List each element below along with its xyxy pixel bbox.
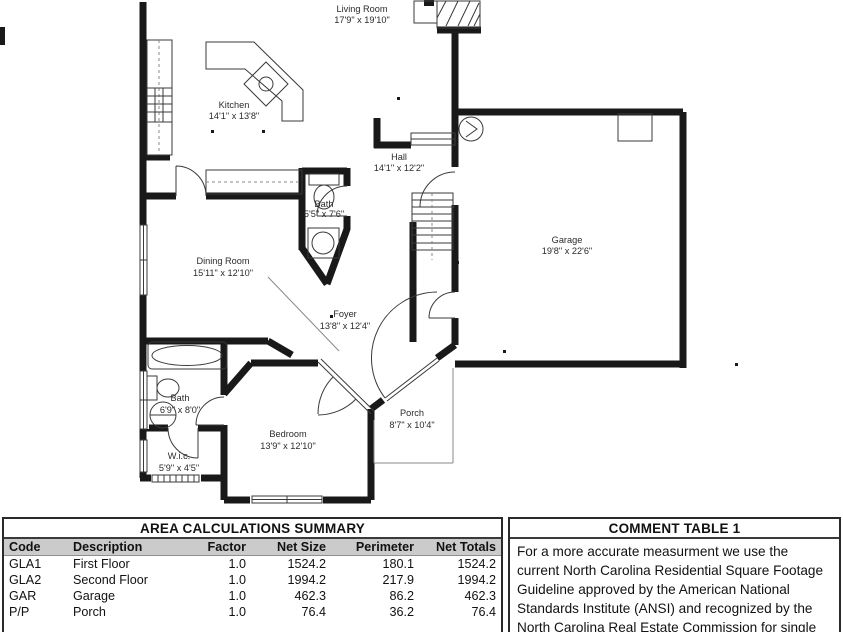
- cell-net-size: 76.4: [251, 604, 331, 620]
- floor-plan-drawing: Living Room 17'9" x 19'10" Kitchen 14'1"…: [0, 0, 843, 516]
- table-row: GLA1 First Floor 1.0 1524.2 180.1 1524.2: [4, 556, 501, 573]
- room-dims-foyer: 13'8" x 12'4": [320, 321, 370, 331]
- col-header-code: Code: [4, 539, 68, 556]
- area-calculations-table: AREA CALCULATIONS SUMMARY Code Descripti…: [2, 517, 503, 632]
- room-dims-kitchen: 14'1" x 13'8": [209, 111, 259, 121]
- cell-code: GLA2: [4, 572, 68, 588]
- cell-net-totals: 76.4: [419, 604, 501, 620]
- stairs: [411, 133, 455, 260]
- table-row: GAR Garage 1.0 462.3 86.2 462.3: [4, 588, 501, 604]
- equipment-box: [618, 114, 652, 141]
- cell-perimeter: 86.2: [331, 588, 419, 604]
- room-dims-hall: 14'1" x 12'2": [374, 163, 424, 173]
- room-label-porch: Porch: [400, 408, 424, 418]
- room-label-hall: Hall: [391, 152, 407, 162]
- comment-table: COMMENT TABLE 1 For a more accurate meas…: [508, 517, 841, 632]
- garage-fixtures: [459, 114, 652, 141]
- cell-code: GAR: [4, 588, 68, 604]
- cell-description: Second Floor: [68, 572, 187, 588]
- cell-net-totals: 462.3: [419, 588, 501, 604]
- cell-net-size: 462.3: [251, 588, 331, 604]
- room-dims-wic: 5'9" x 4'5": [159, 463, 199, 473]
- table-row: P/P Porch 1.0 76.4 36.2 76.4: [4, 604, 501, 620]
- room-label-wic: W.i.c.: [168, 451, 190, 461]
- cell-factor: 1.0: [187, 572, 251, 588]
- cell-factor: 1.0: [187, 588, 251, 604]
- table-row: GLA2 Second Floor 1.0 1994.2 217.9 1994.…: [4, 572, 501, 588]
- col-header-factor: Factor: [187, 539, 251, 556]
- col-header-description: Description: [68, 539, 187, 556]
- col-header-net-size: Net Size: [251, 539, 331, 556]
- cell-code: P/P: [4, 604, 68, 620]
- comment-table-title: COMMENT TABLE 1: [510, 519, 839, 539]
- cell-net-totals: 1994.2: [419, 572, 501, 588]
- floor-plan-sketch-page: Living Room 17'9" x 19'10" Kitchen 14'1"…: [0, 0, 843, 632]
- room-label-dining-room: Dining Room: [196, 256, 249, 266]
- room-label-bedroom: Bedroom: [269, 429, 307, 439]
- toilet-icon: [309, 174, 339, 185]
- room-label-kitchen: Kitchen: [219, 100, 250, 110]
- room-dims-porch: 8'7" x 10'4": [389, 420, 434, 430]
- comment-table-text: For a more accurate measurment we use th…: [510, 539, 839, 632]
- col-header-perimeter: Perimeter: [331, 539, 419, 556]
- room-dims-bath-upper: 5'5" x 7'6": [304, 209, 344, 219]
- room-label-foyer: Foyer: [333, 309, 357, 319]
- area-table-title: AREA CALCULATIONS SUMMARY: [4, 519, 501, 539]
- cell-net-totals: 1524.2: [419, 556, 501, 573]
- room-label-bath-lower: Bath: [171, 393, 190, 403]
- room-label-bath-upper: Bath: [315, 199, 334, 209]
- room-dims-living-room: 17'9" x 19'10": [334, 15, 390, 25]
- water-heater-icon: [459, 117, 483, 141]
- room-dims-bath-lower: 6'9" x 8'0": [160, 405, 200, 415]
- area-table-header-row: Code Description Factor Net Size Perimet…: [4, 539, 501, 556]
- cell-net-size: 1524.2: [251, 556, 331, 573]
- cell-description: Porch: [68, 604, 187, 620]
- cell-perimeter: 36.2: [331, 604, 419, 620]
- cell-net-size: 1994.2: [251, 572, 331, 588]
- cell-factor: 1.0: [187, 556, 251, 573]
- room-dims-garage: 19'8" x 22'6": [542, 246, 592, 256]
- room-label-living-room: Living Room: [336, 4, 387, 14]
- room-dims-bedroom: 13'9" x 12'10": [260, 441, 316, 451]
- room-label-garage: Garage: [552, 235, 583, 245]
- cell-factor: 1.0: [187, 604, 251, 620]
- cell-perimeter: 217.9: [331, 572, 419, 588]
- cell-code: GLA1: [4, 556, 68, 573]
- vertex-markers: [211, 97, 738, 366]
- bathtub-icon: [148, 342, 227, 369]
- cell-description: First Floor: [68, 556, 187, 573]
- cell-perimeter: 180.1: [331, 556, 419, 573]
- col-header-net-totals: Net Totals: [419, 539, 501, 556]
- cell-description: Garage: [68, 588, 187, 604]
- fireplace-icon: [414, 1, 480, 28]
- room-dims-dining-room: 15'11" x 12'10": [193, 268, 253, 278]
